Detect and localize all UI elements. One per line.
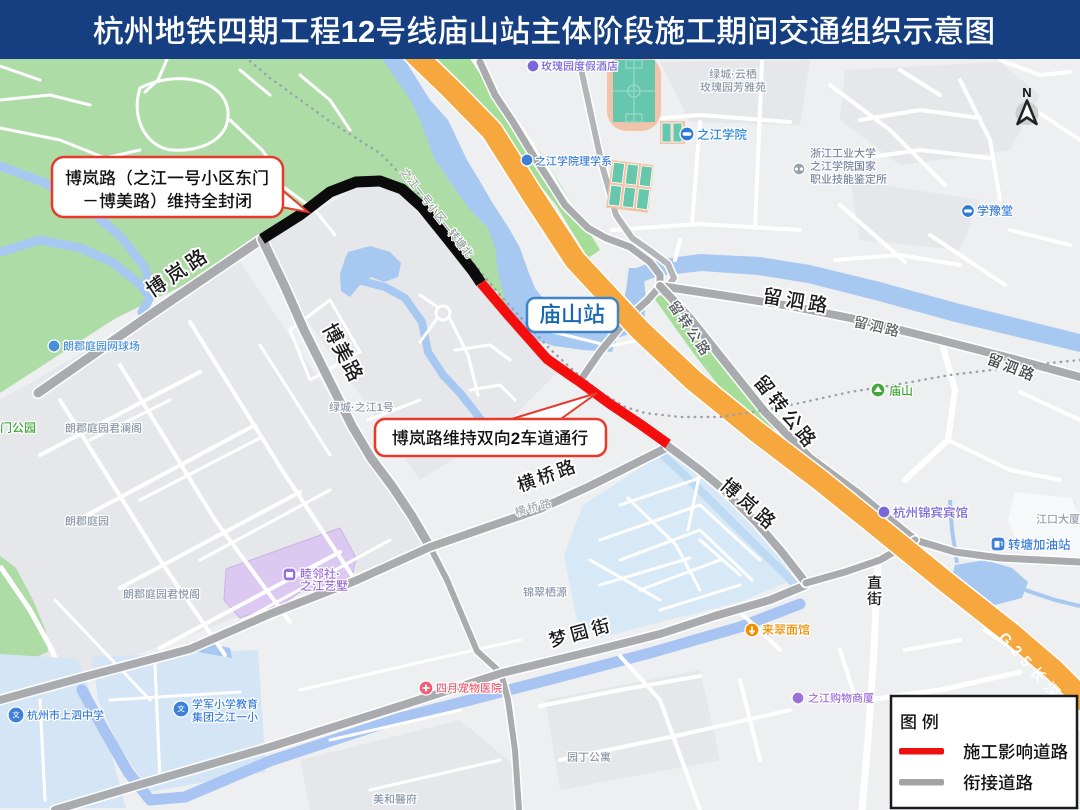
svg-text:之江学院: 之江学院 <box>697 128 748 142</box>
svg-text:之江学院理学系: 之江学院理学系 <box>535 155 612 168</box>
svg-text:浙江工业大学: 浙江工业大学 <box>810 147 876 160</box>
svg-text:之江购物商厦: 之江购物商厦 <box>808 692 874 705</box>
svg-text:绿城·云栖: 绿城·云栖 <box>709 68 757 81</box>
svg-text:学军小学教育: 学军小学教育 <box>192 698 258 711</box>
svg-text:朗郡庭园: 朗郡庭园 <box>65 515 109 528</box>
svg-text:来翠面馆: 来翠面馆 <box>762 623 810 637</box>
svg-text:图 例: 图 例 <box>900 713 939 732</box>
svg-text:衔接道路: 衔接道路 <box>963 773 1033 793</box>
svg-text:转塘加油站: 转塘加油站 <box>1008 538 1071 552</box>
svg-text:博岚路（之江一号小区东门: 博岚路（之江一号小区东门 <box>65 169 269 188</box>
svg-text:玫瑰园芳雅苑: 玫瑰园芳雅苑 <box>700 81 766 94</box>
svg-text:绿城·之江1号: 绿城·之江1号 <box>329 401 394 414</box>
svg-text:之江艺墅: 之江艺墅 <box>300 579 348 593</box>
svg-text:四月宠物医院: 四月宠物医院 <box>436 682 502 695</box>
svg-text:学豫堂: 学豫堂 <box>977 204 1013 218</box>
svg-text:博岚路维持双向2车道通行: 博岚路维持双向2车道通行 <box>392 429 588 448</box>
svg-text:美和醫府: 美和醫府 <box>373 793 417 806</box>
svg-text:朗郡庭园网球场: 朗郡庭园网球场 <box>63 340 140 353</box>
svg-text:职业技能鉴定所: 职业技能鉴定所 <box>810 173 887 186</box>
svg-text:之江学院国家: 之江学院国家 <box>810 160 876 173</box>
svg-text:施工影响道路: 施工影响道路 <box>963 742 1068 762</box>
svg-text:N: N <box>1022 85 1031 100</box>
svg-text:庙山: 庙山 <box>889 384 913 398</box>
svg-text:街: 街 <box>867 591 882 608</box>
svg-text:朗郡庭园君澜阁: 朗郡庭园君澜阁 <box>65 422 142 435</box>
svg-text:江口大厦: 江口大厦 <box>1036 513 1080 526</box>
svg-text:门公园: 门公园 <box>0 421 36 435</box>
svg-text:锦翠栖源: 锦翠栖源 <box>523 586 567 599</box>
svg-text:园丁公寓: 园丁公寓 <box>567 751 611 764</box>
svg-text:集团之江一小: 集团之江一小 <box>192 711 258 724</box>
svg-text:庙山站: 庙山站 <box>539 302 605 327</box>
svg-text:－博美路）维持全封闭: －博美路）维持全封闭 <box>82 192 252 211</box>
svg-text:朗郡庭园君悦阁: 朗郡庭园君悦阁 <box>123 588 200 601</box>
svg-text:文: 文 <box>12 711 20 720</box>
svg-text:杭州地铁四期工程12号线庙山站主体阶段施工期间交通组织示意图: 杭州地铁四期工程12号线庙山站主体阶段施工期间交通组织示意图 <box>93 14 995 49</box>
svg-text:杭州市上泗中学: 杭州市上泗中学 <box>27 709 104 722</box>
svg-text:文: 文 <box>177 705 185 714</box>
svg-text:玫瑰园度假酒店: 玫瑰园度假酒店 <box>541 60 618 73</box>
svg-text:直: 直 <box>867 575 882 592</box>
svg-text:杭州锦宾宾馆: 杭州锦宾宾馆 <box>893 506 968 520</box>
